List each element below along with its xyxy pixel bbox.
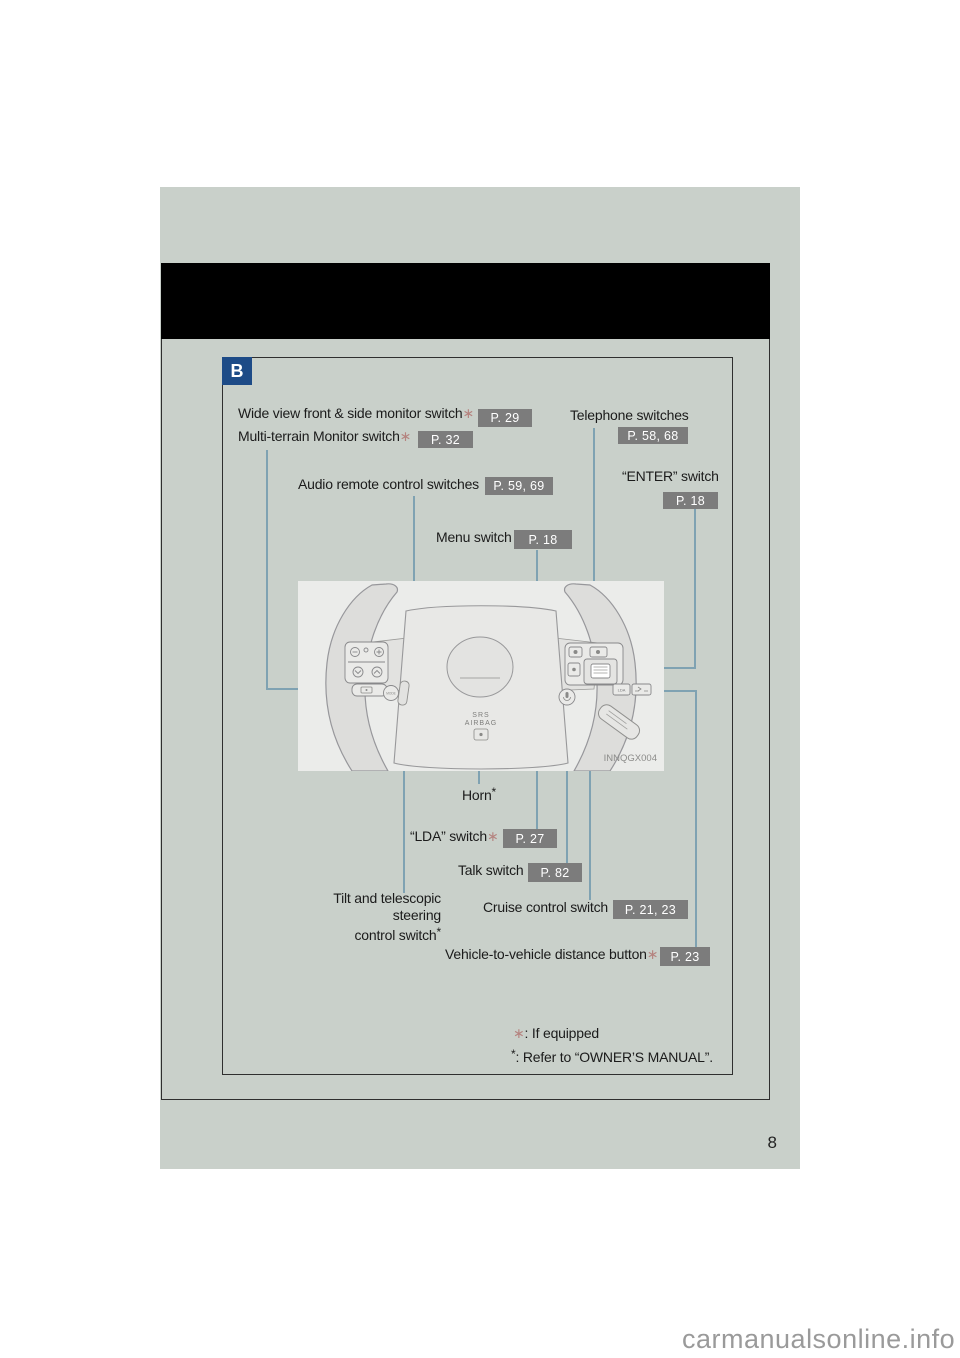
manual-page: { "tab": "B", "callouts": { "wide_view":… <box>0 0 960 1358</box>
callout-horn-text: Horn <box>462 787 492 803</box>
horn-badge-glyph <box>479 733 482 736</box>
callout-talk: Talk switch <box>458 862 523 879</box>
callout-vehicle-distance: Vehicle-to-vehicle distance button∗ <box>445 946 658 963</box>
callout-cruise-text: Cruise control switch <box>483 899 608 915</box>
right-switch-pod <box>565 643 623 685</box>
callout-telephone: Telephone switches <box>570 407 689 424</box>
footnote-owners-manual: *: Refer to “OWNER’S MANUAL”. <box>511 1046 713 1066</box>
emblem-area <box>447 637 513 697</box>
owners-manual-star: * <box>437 925 441 939</box>
page-number: 8 <box>745 1133 777 1153</box>
leader-wideview-vertical <box>266 450 268 690</box>
footnote-if-equipped: ∗: If equipped <box>513 1025 599 1042</box>
callout-enter: “ENTER” switch <box>622 468 719 485</box>
phone-icon <box>574 650 578 654</box>
leader-enter-vertical <box>694 509 696 669</box>
section-tab-b: B <box>222 357 252 385</box>
if-equipped-asterisk: ∗ <box>462 405 474 421</box>
leader-vehicledist-vertical <box>695 691 697 947</box>
callout-tilt-line2: control switch <box>355 927 437 943</box>
lda-button-label: LDA <box>618 688 626 693</box>
pageref-wide-view: P. 29 <box>478 409 532 427</box>
callout-audio: Audio remote control switches <box>298 476 479 493</box>
callout-lda: “LDA” switch∗ <box>410 828 498 845</box>
callout-multi-terrain: Multi-terrain Monitor switch∗ <box>238 428 411 445</box>
footnote-if-equipped-text: : If equipped <box>525 1025 599 1041</box>
callout-telephone-text: Telephone switches <box>570 407 689 423</box>
if-equipped-asterisk: ∗ <box>487 828 499 844</box>
callout-enter-text: “ENTER” switch <box>622 468 719 484</box>
callout-horn: Horn* <box>462 784 496 804</box>
callout-wide-view: Wide view front & side monitor switch∗ <box>238 405 474 422</box>
srs-text-line2: AIRBAG <box>465 720 497 727</box>
pageref-cruise: P. 21, 23 <box>613 900 688 919</box>
callout-menu: Menu switch <box>436 529 512 546</box>
owners-manual-star: * <box>492 785 496 799</box>
phone-off-icon <box>596 650 600 654</box>
callout-vehicle-distance-text: Vehicle-to-vehicle distance button <box>445 946 647 962</box>
pageref-enter: P. 18 <box>663 492 718 509</box>
figure-code: INNQGX004 <box>604 753 657 764</box>
callout-menu-text: Menu switch <box>436 529 512 545</box>
callout-tilt: Tilt and telescopic steering control swi… <box>283 890 441 944</box>
monitor-switch-button <box>352 684 387 696</box>
mode-button-label: MODE <box>386 692 396 696</box>
callout-lda-text: “LDA” switch <box>410 828 487 844</box>
callout-cruise: Cruise control switch <box>483 899 608 916</box>
distance-button <box>632 684 651 695</box>
pageref-menu: P. 18 <box>514 530 572 549</box>
left-switch-pod <box>345 642 388 683</box>
steering-wheel-figure: SRS AIRBAG MODE LDA <box>298 581 664 771</box>
section-tab-label: B <box>231 361 244 382</box>
mic-icon <box>566 692 569 698</box>
black-header-banner <box>161 263 770 339</box>
callout-multi-terrain-text: Multi-terrain Monitor switch <box>238 428 400 444</box>
pageref-talk: P. 82 <box>528 863 582 882</box>
callout-talk-text: Talk switch <box>458 862 523 878</box>
callout-audio-text: Audio remote control switches <box>298 476 479 492</box>
menu-button-icon <box>572 668 576 672</box>
pageref-lda: P. 27 <box>503 829 557 848</box>
pageref-multi-terrain: P. 32 <box>418 431 473 448</box>
enter-button <box>591 664 610 678</box>
if-equipped-asterisk: ∗ <box>513 1025 525 1041</box>
footnote-owners-manual-text: : Refer to “OWNER’S MANUAL”. <box>515 1049 712 1065</box>
srs-text-line1: SRS <box>472 712 489 719</box>
pageref-audio: P. 59, 69 <box>485 477 553 495</box>
callout-wide-view-text: Wide view front & side monitor switch <box>238 405 462 421</box>
callout-tilt-line1: Tilt and telescopic steering <box>333 890 441 923</box>
watermark: carmanualsonline.info <box>682 1324 955 1355</box>
if-equipped-asterisk: ∗ <box>647 946 659 962</box>
pageref-telephone: P. 58, 68 <box>618 427 688 444</box>
monitor-icon-dot <box>366 689 368 691</box>
if-equipped-asterisk: ∗ <box>400 428 412 444</box>
pageref-vehicle-distance: P. 23 <box>660 947 710 966</box>
